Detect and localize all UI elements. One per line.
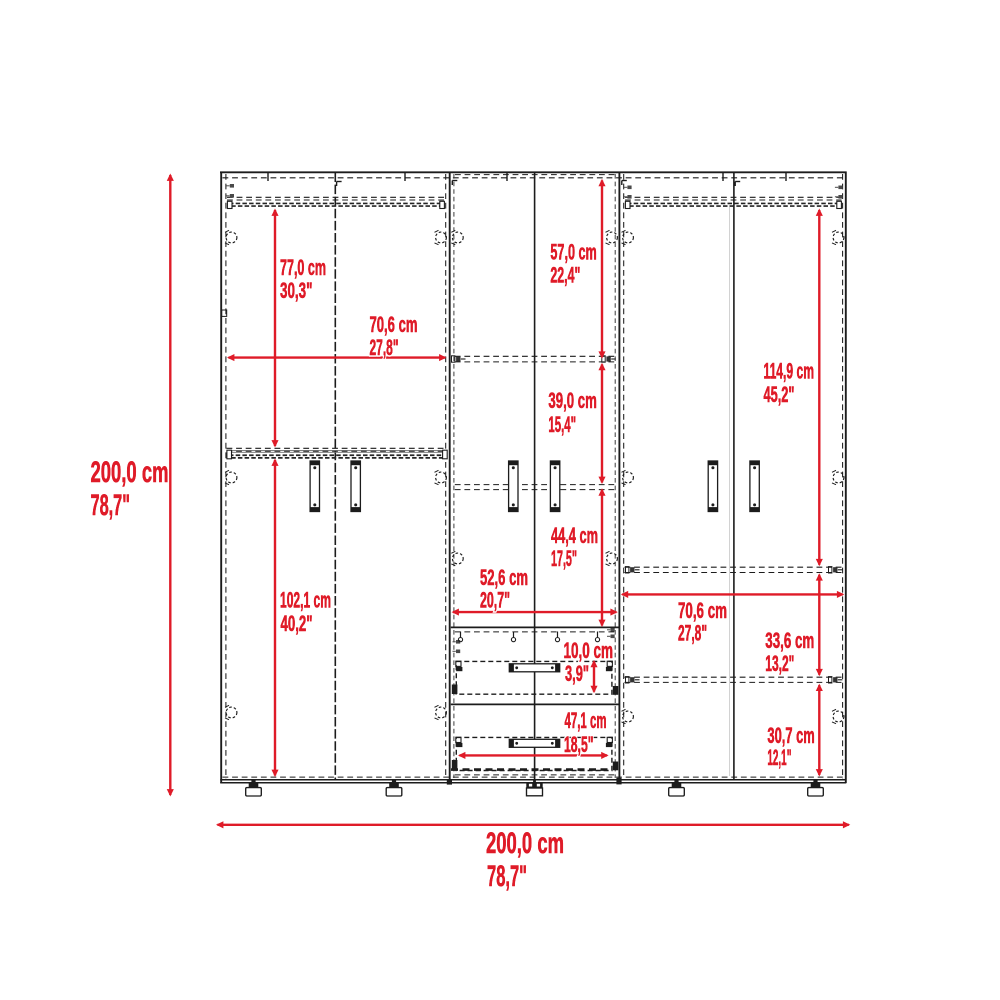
svg-text:77,0 cm: 77,0 cm: [280, 255, 326, 280]
svg-text:30,3": 30,3": [280, 278, 313, 303]
svg-text:114,9 cm: 114,9 cm: [764, 359, 815, 384]
svg-text:20,7": 20,7": [480, 588, 510, 613]
svg-text:3,9": 3,9": [565, 661, 589, 686]
svg-text:102,1 cm: 102,1 cm: [280, 588, 331, 613]
svg-text:27,8": 27,8": [678, 621, 707, 646]
svg-text:78,7": 78,7": [91, 489, 131, 522]
svg-text:200,0 cm: 200,0 cm: [91, 456, 169, 489]
svg-text:22,4": 22,4": [550, 263, 580, 288]
svg-text:27,8": 27,8": [370, 335, 399, 360]
svg-text:15,4": 15,4": [548, 412, 576, 437]
svg-text:78,7": 78,7": [487, 860, 527, 893]
svg-text:33,6 cm: 33,6 cm: [765, 628, 814, 653]
svg-text:39,0 cm: 39,0 cm: [548, 388, 596, 413]
svg-text:17,5": 17,5": [551, 546, 577, 571]
svg-text:44,4 cm: 44,4 cm: [551, 523, 598, 548]
svg-text:200,0 cm: 200,0 cm: [486, 827, 564, 860]
svg-text:52,6 cm: 52,6 cm: [480, 565, 528, 590]
svg-text:45,2": 45,2": [764, 382, 795, 407]
svg-text:47,1 cm: 47,1 cm: [565, 708, 607, 733]
svg-text:13,2": 13,2": [765, 651, 794, 676]
svg-text:12,1": 12,1": [767, 745, 791, 770]
svg-text:10,0 cm: 10,0 cm: [564, 638, 614, 663]
svg-text:57,0 cm: 57,0 cm: [550, 240, 596, 265]
svg-text:70,6 cm: 70,6 cm: [678, 598, 727, 623]
svg-text:18,5": 18,5": [564, 732, 594, 757]
svg-text:70,6 cm: 70,6 cm: [370, 312, 418, 337]
svg-text:40,2": 40,2": [281, 611, 313, 636]
